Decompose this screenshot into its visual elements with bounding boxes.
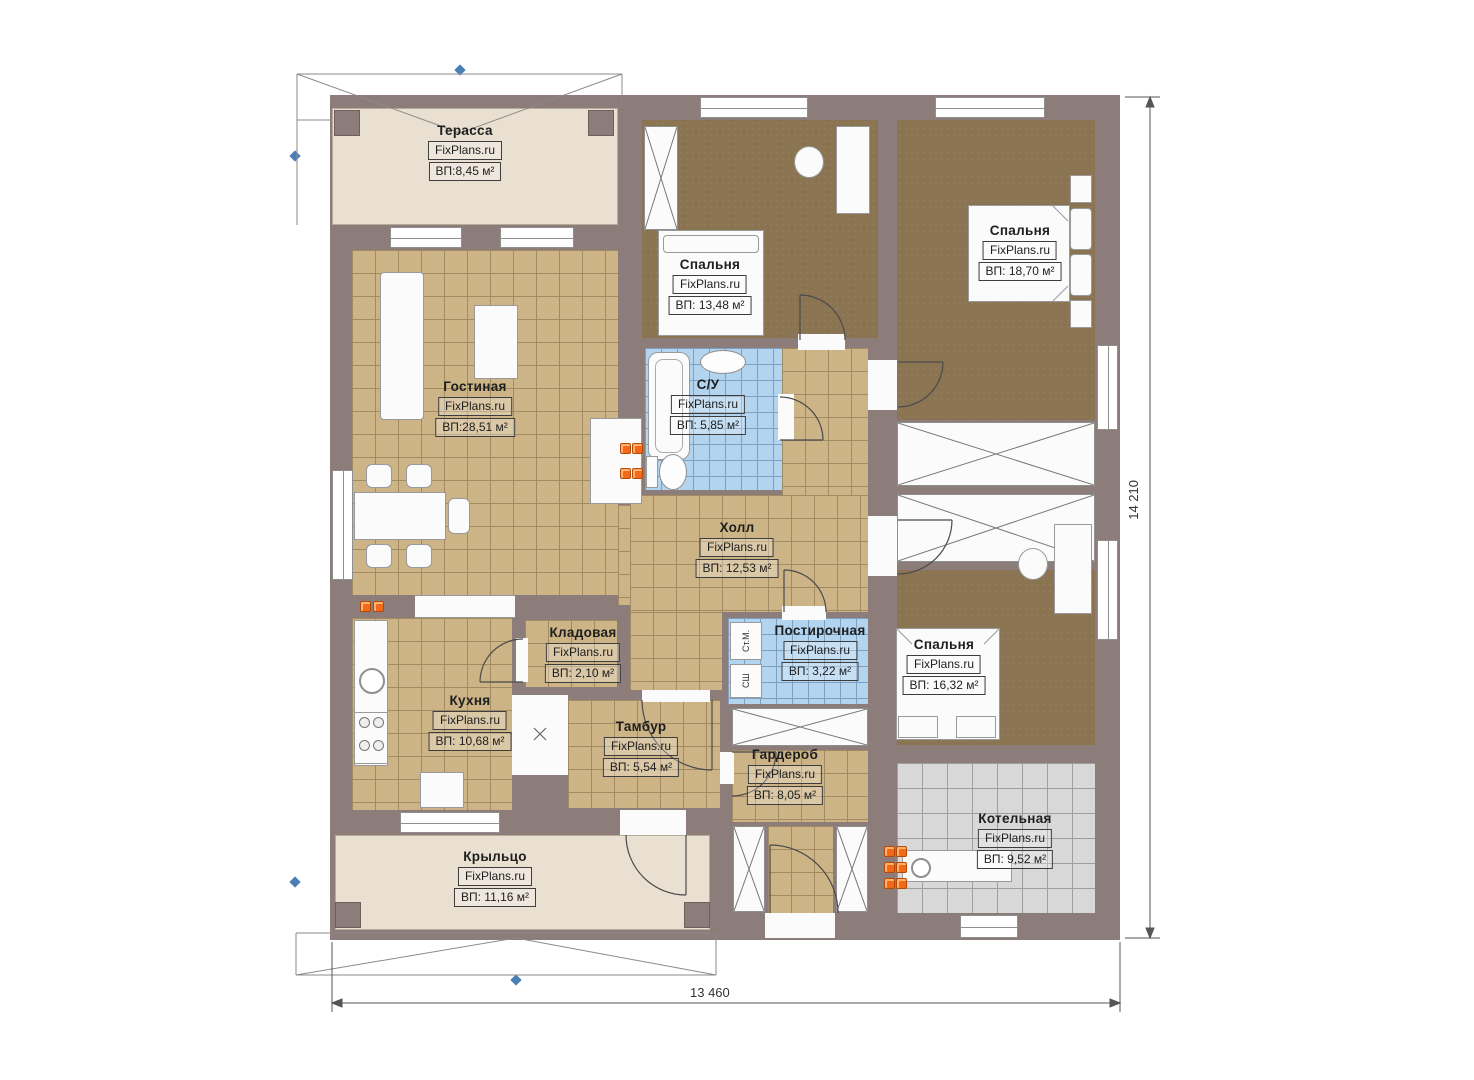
- area-tag: ВП: 5,85 м²: [670, 416, 746, 435]
- brand-tag: FixPlans.ru: [604, 737, 678, 756]
- label-storage: Кладовая FixPlans.ru ВП: 2,10 м²: [545, 626, 621, 683]
- area-tag: ВП:28,51 м²: [435, 418, 515, 437]
- heat-marker-icon: [620, 468, 631, 479]
- label-bedroom-bottom: Спальня FixPlans.ru ВП: 16,32 м²: [903, 638, 986, 695]
- brand-tag: FixPlans.ru: [700, 538, 774, 557]
- area-tag: ВП: 13,48 м²: [669, 296, 752, 315]
- label-living: Гостиная FixPlans.ru ВП:28,51 м²: [435, 380, 515, 437]
- brand-tag: FixPlans.ru: [978, 829, 1052, 848]
- heat-marker-icon: [896, 878, 907, 889]
- brand-tag: FixPlans.ru: [438, 397, 512, 416]
- heat-marker-icon: [896, 862, 907, 873]
- area-tag: ВП: 5,54 м²: [603, 758, 679, 777]
- area-tag: ВП: 8,05 м²: [747, 786, 823, 805]
- area-tag: ВП: 3,22 м²: [782, 662, 858, 681]
- label-hall: Холл FixPlans.ru ВП: 12,53 м²: [696, 521, 779, 578]
- brand-tag: FixPlans.ru: [671, 395, 745, 414]
- heat-marker-icon: [884, 846, 895, 857]
- label-terrace: Терасса FixPlans.ru ВП:8,45 м²: [428, 124, 502, 181]
- brand-tag: FixPlans.ru: [433, 711, 507, 730]
- brand-tag: FixPlans.ru: [783, 641, 857, 660]
- heat-marker-icon: [884, 878, 895, 889]
- area-tag: ВП: 10,68 м²: [429, 732, 512, 751]
- door-laundry: [784, 570, 826, 612]
- heat-marker-icon: [360, 601, 371, 612]
- roof-outline: [296, 74, 716, 975]
- area-tag: ВП: 16,32 м²: [903, 676, 986, 695]
- door-bathroom: [780, 397, 823, 440]
- label-kitchen: Кухня FixPlans.ru ВП: 10,68 м²: [429, 694, 512, 751]
- area-tag: ВП: 12,53 м²: [696, 559, 779, 578]
- dimension-width: 13 460: [690, 985, 730, 1000]
- kitchen-sink-icon: [359, 668, 385, 694]
- washing-machine: Ст.М.: [730, 622, 762, 660]
- heat-marker-icon: [373, 601, 384, 612]
- brand-tag: FixPlans.ru: [907, 655, 981, 674]
- heat-marker-icon: [620, 443, 631, 454]
- door-bedroom-right: [898, 362, 943, 407]
- door-entry: [770, 845, 838, 913]
- heat-marker-icon: [896, 846, 907, 857]
- area-tag: ВП: 11,16 м²: [454, 888, 536, 907]
- label-bedroom-right: Спальня FixPlans.ru ВП: 18,70 м²: [979, 224, 1062, 281]
- door-storage: [480, 639, 523, 682]
- label-boiler: Котельная FixPlans.ru ВП: 9,52 м²: [977, 812, 1053, 869]
- dryer-label: СШ: [731, 665, 761, 697]
- heat-marker-icon: [884, 862, 895, 873]
- area-tag: ВП:8,45 м²: [429, 162, 502, 181]
- brand-tag: FixPlans.ru: [546, 643, 620, 662]
- floor-plan-canvas: Ст.М. СШ: [0, 0, 1474, 1080]
- label-vestibule: Тамбур FixPlans.ru ВП: 5,54 м²: [603, 720, 679, 777]
- stove-icon: [354, 712, 388, 764]
- brand-tag: FixPlans.ru: [428, 141, 502, 160]
- brand-tag: FixPlans.ru: [458, 867, 532, 886]
- brand-tag: FixPlans.ru: [748, 765, 822, 784]
- label-bedroom-top: Спальня FixPlans.ru ВП: 13,48 м²: [669, 258, 752, 315]
- threshold-marker: [534, 728, 546, 740]
- heat-marker-icon: [632, 443, 643, 454]
- label-wardrobe: Гардероб FixPlans.ru ВП: 8,05 м²: [747, 748, 823, 805]
- dryer: СШ: [730, 664, 762, 698]
- door-porch: [626, 835, 686, 895]
- brand-tag: FixPlans.ru: [673, 275, 747, 294]
- door-bedroom-top: [800, 295, 845, 340]
- label-bathroom: С/У FixPlans.ru ВП: 5,85 м²: [670, 378, 746, 435]
- area-tag: ВП: 9,52 м²: [977, 850, 1053, 869]
- door-bedroom-bottom: [898, 520, 952, 574]
- fireplace: [590, 418, 642, 504]
- brand-tag: FixPlans.ru: [983, 241, 1057, 260]
- label-porch: Крыльцо FixPlans.ru ВП: 11,16 м²: [454, 850, 536, 907]
- area-tag: ВП: 2,10 м²: [545, 664, 621, 683]
- heat-marker-icon: [632, 468, 643, 479]
- label-laundry: Постирочная FixPlans.ru ВП: 3,22 м²: [774, 624, 865, 681]
- area-tag: ВП: 18,70 м²: [979, 262, 1062, 281]
- washing-machine-label: Ст.М.: [731, 623, 761, 659]
- dimension-height: 14 210: [1126, 480, 1141, 520]
